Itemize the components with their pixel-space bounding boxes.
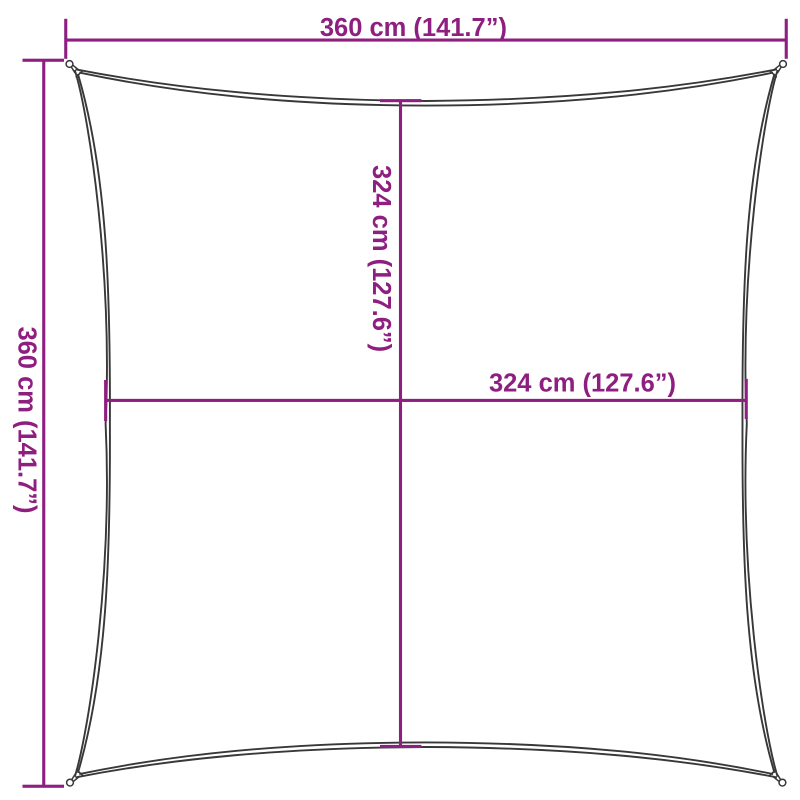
- svg-text:324 cm (127.6”): 324 cm (127.6”): [367, 165, 395, 352]
- svg-text:324 cm (127.6”): 324 cm (127.6”): [489, 370, 676, 398]
- svg-text:360 cm (141.7”): 360 cm (141.7”): [320, 14, 507, 42]
- svg-text:360 cm (141.7”): 360 cm (141.7”): [13, 326, 41, 513]
